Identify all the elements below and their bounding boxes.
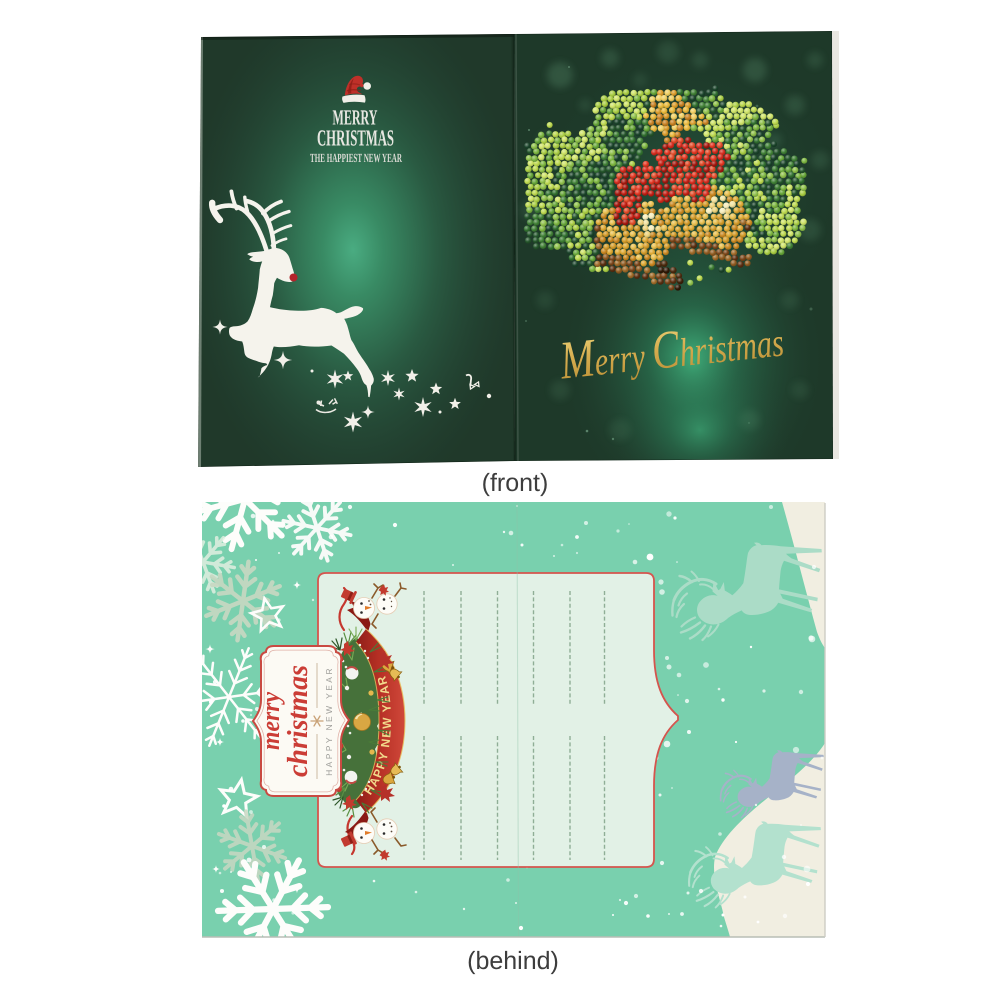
svg-text:HAPPY NEW YEAR: HAPPY NEW YEAR bbox=[324, 666, 334, 776]
svg-text:christmas: christmas bbox=[282, 665, 314, 777]
svg-text:THE HAPPIEST NEW YEAR: THE HAPPIEST NEW YEAR bbox=[310, 151, 403, 165]
svg-text:(behind): (behind) bbox=[467, 947, 559, 975]
svg-text:CHRISTMAS: CHRISTMAS bbox=[317, 126, 394, 151]
svg-text:merry: merry bbox=[256, 692, 285, 750]
svg-text:(front): (front) bbox=[482, 469, 549, 497]
